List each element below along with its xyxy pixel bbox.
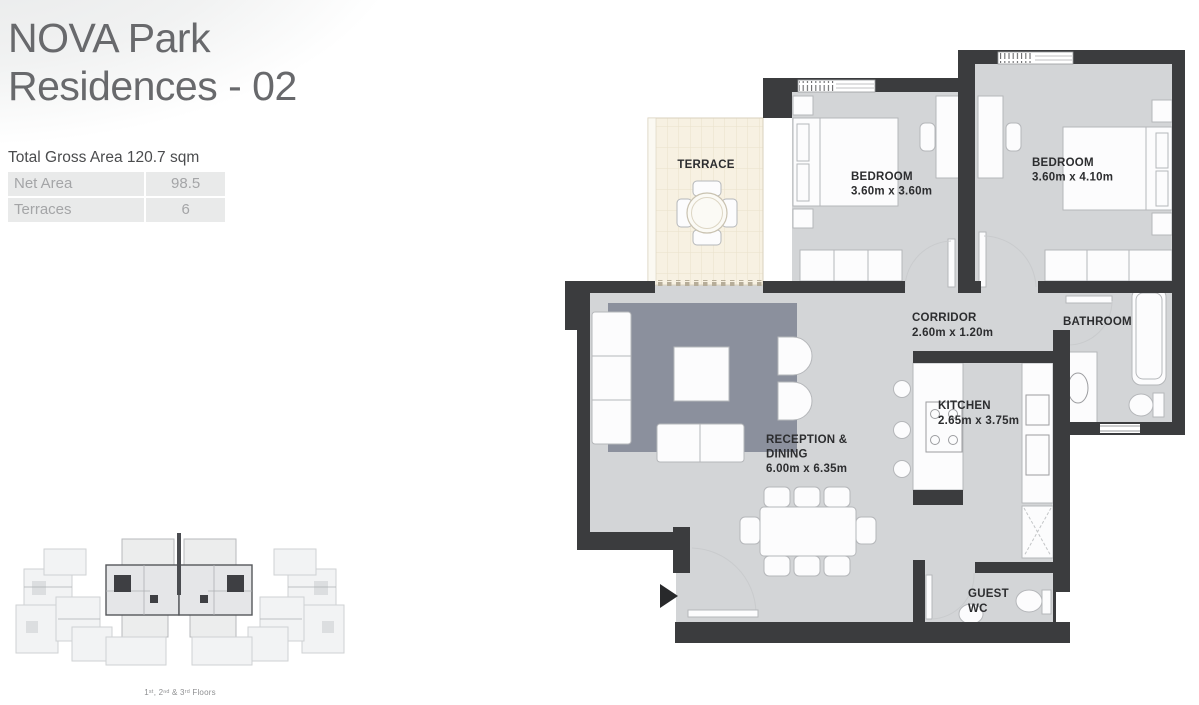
room-terrace bbox=[648, 118, 763, 286]
desk bbox=[936, 96, 960, 178]
label-kitchen: KITCHEN bbox=[938, 400, 991, 412]
label-bedroom1: BEDROOM bbox=[851, 171, 913, 183]
toilet-tank bbox=[1153, 393, 1164, 417]
key-plan-left-wing bbox=[16, 549, 112, 661]
nightstand bbox=[793, 96, 813, 115]
label-guest-wc-1: GUEST bbox=[968, 588, 1009, 600]
label-guest-wc-2: WC bbox=[968, 603, 988, 615]
title-line-1: NOVA Park bbox=[8, 14, 297, 62]
title-line-2: Residences - 02 bbox=[8, 62, 297, 110]
nightstand bbox=[1152, 213, 1172, 235]
toilet bbox=[1016, 590, 1042, 612]
door-leaf bbox=[1066, 296, 1112, 303]
toilet bbox=[1129, 394, 1153, 416]
entry-door-leaf bbox=[688, 610, 758, 617]
row-label: Net Area bbox=[8, 172, 144, 196]
door-leaf bbox=[926, 575, 932, 619]
bathtub bbox=[1132, 288, 1166, 385]
page-title: NOVA Park Residences - 02 bbox=[8, 14, 297, 110]
kitchen-counter bbox=[1022, 363, 1053, 503]
bar-stool bbox=[894, 381, 911, 398]
table-row: Terraces 6 bbox=[8, 198, 225, 222]
row-value: 6 bbox=[146, 198, 225, 222]
wardrobe bbox=[1045, 250, 1172, 281]
row-label: Terraces bbox=[8, 198, 144, 222]
desk-chair bbox=[920, 123, 935, 151]
door-leaf bbox=[979, 232, 986, 287]
label-reception-dims: 6.00m x 6.35m bbox=[766, 463, 847, 475]
total-gross-area: Total Gross Area 120.7 sqm bbox=[8, 149, 199, 167]
toilet-tank bbox=[1042, 590, 1051, 614]
key-plan-right-wing bbox=[248, 549, 344, 661]
label-corridor: CORRIDOR bbox=[912, 312, 977, 324]
brochure-page: NOVA Park Residences - 02 Total Gross Ar… bbox=[0, 0, 1199, 705]
label-kitchen-dims: 2.65m x 3.75m bbox=[938, 415, 1019, 427]
label-terrace: TERRACE bbox=[677, 159, 734, 171]
label-bedroom1-dims: 3.60m x 3.60m bbox=[851, 186, 932, 198]
label-bathroom: BATHROOM bbox=[1063, 316, 1132, 328]
key-plan-lower-units bbox=[106, 615, 252, 665]
armchair bbox=[778, 382, 812, 420]
table-row: Net Area 98.5 bbox=[8, 172, 225, 196]
floor-plan: TERRACE BEDROOM 3.60m x 3.60m BEDROOM 3.… bbox=[558, 0, 1199, 705]
nightstand bbox=[1152, 100, 1172, 122]
row-value: 98.5 bbox=[146, 172, 225, 196]
armchair bbox=[778, 337, 812, 375]
key-plan-highlighted-units bbox=[106, 533, 252, 615]
wardrobe bbox=[800, 250, 902, 281]
sofa bbox=[592, 312, 631, 444]
label-reception-2: DINING bbox=[766, 449, 808, 461]
bar-stool bbox=[894, 461, 911, 478]
label-corridor-dims: 2.60m x 1.20m bbox=[912, 327, 993, 339]
door-leaf bbox=[948, 239, 955, 287]
desk-chair bbox=[1006, 123, 1021, 151]
area-table: Net Area 98.5 Terraces 6 bbox=[8, 172, 225, 224]
bar-stool bbox=[894, 422, 911, 439]
desk bbox=[978, 96, 1003, 178]
label-reception-1: RECEPTION & bbox=[766, 434, 847, 446]
coffee-table bbox=[674, 347, 729, 401]
label-bedroom2-dims: 3.60m x 4.10m bbox=[1032, 172, 1113, 184]
label-bedroom2: BEDROOM bbox=[1032, 157, 1094, 169]
key-plan bbox=[10, 531, 350, 681]
nightstand bbox=[793, 209, 813, 228]
key-plan-caption: 1ˢᵗ, 2ⁿᵈ & 3ʳᵈ Floors bbox=[10, 688, 350, 697]
